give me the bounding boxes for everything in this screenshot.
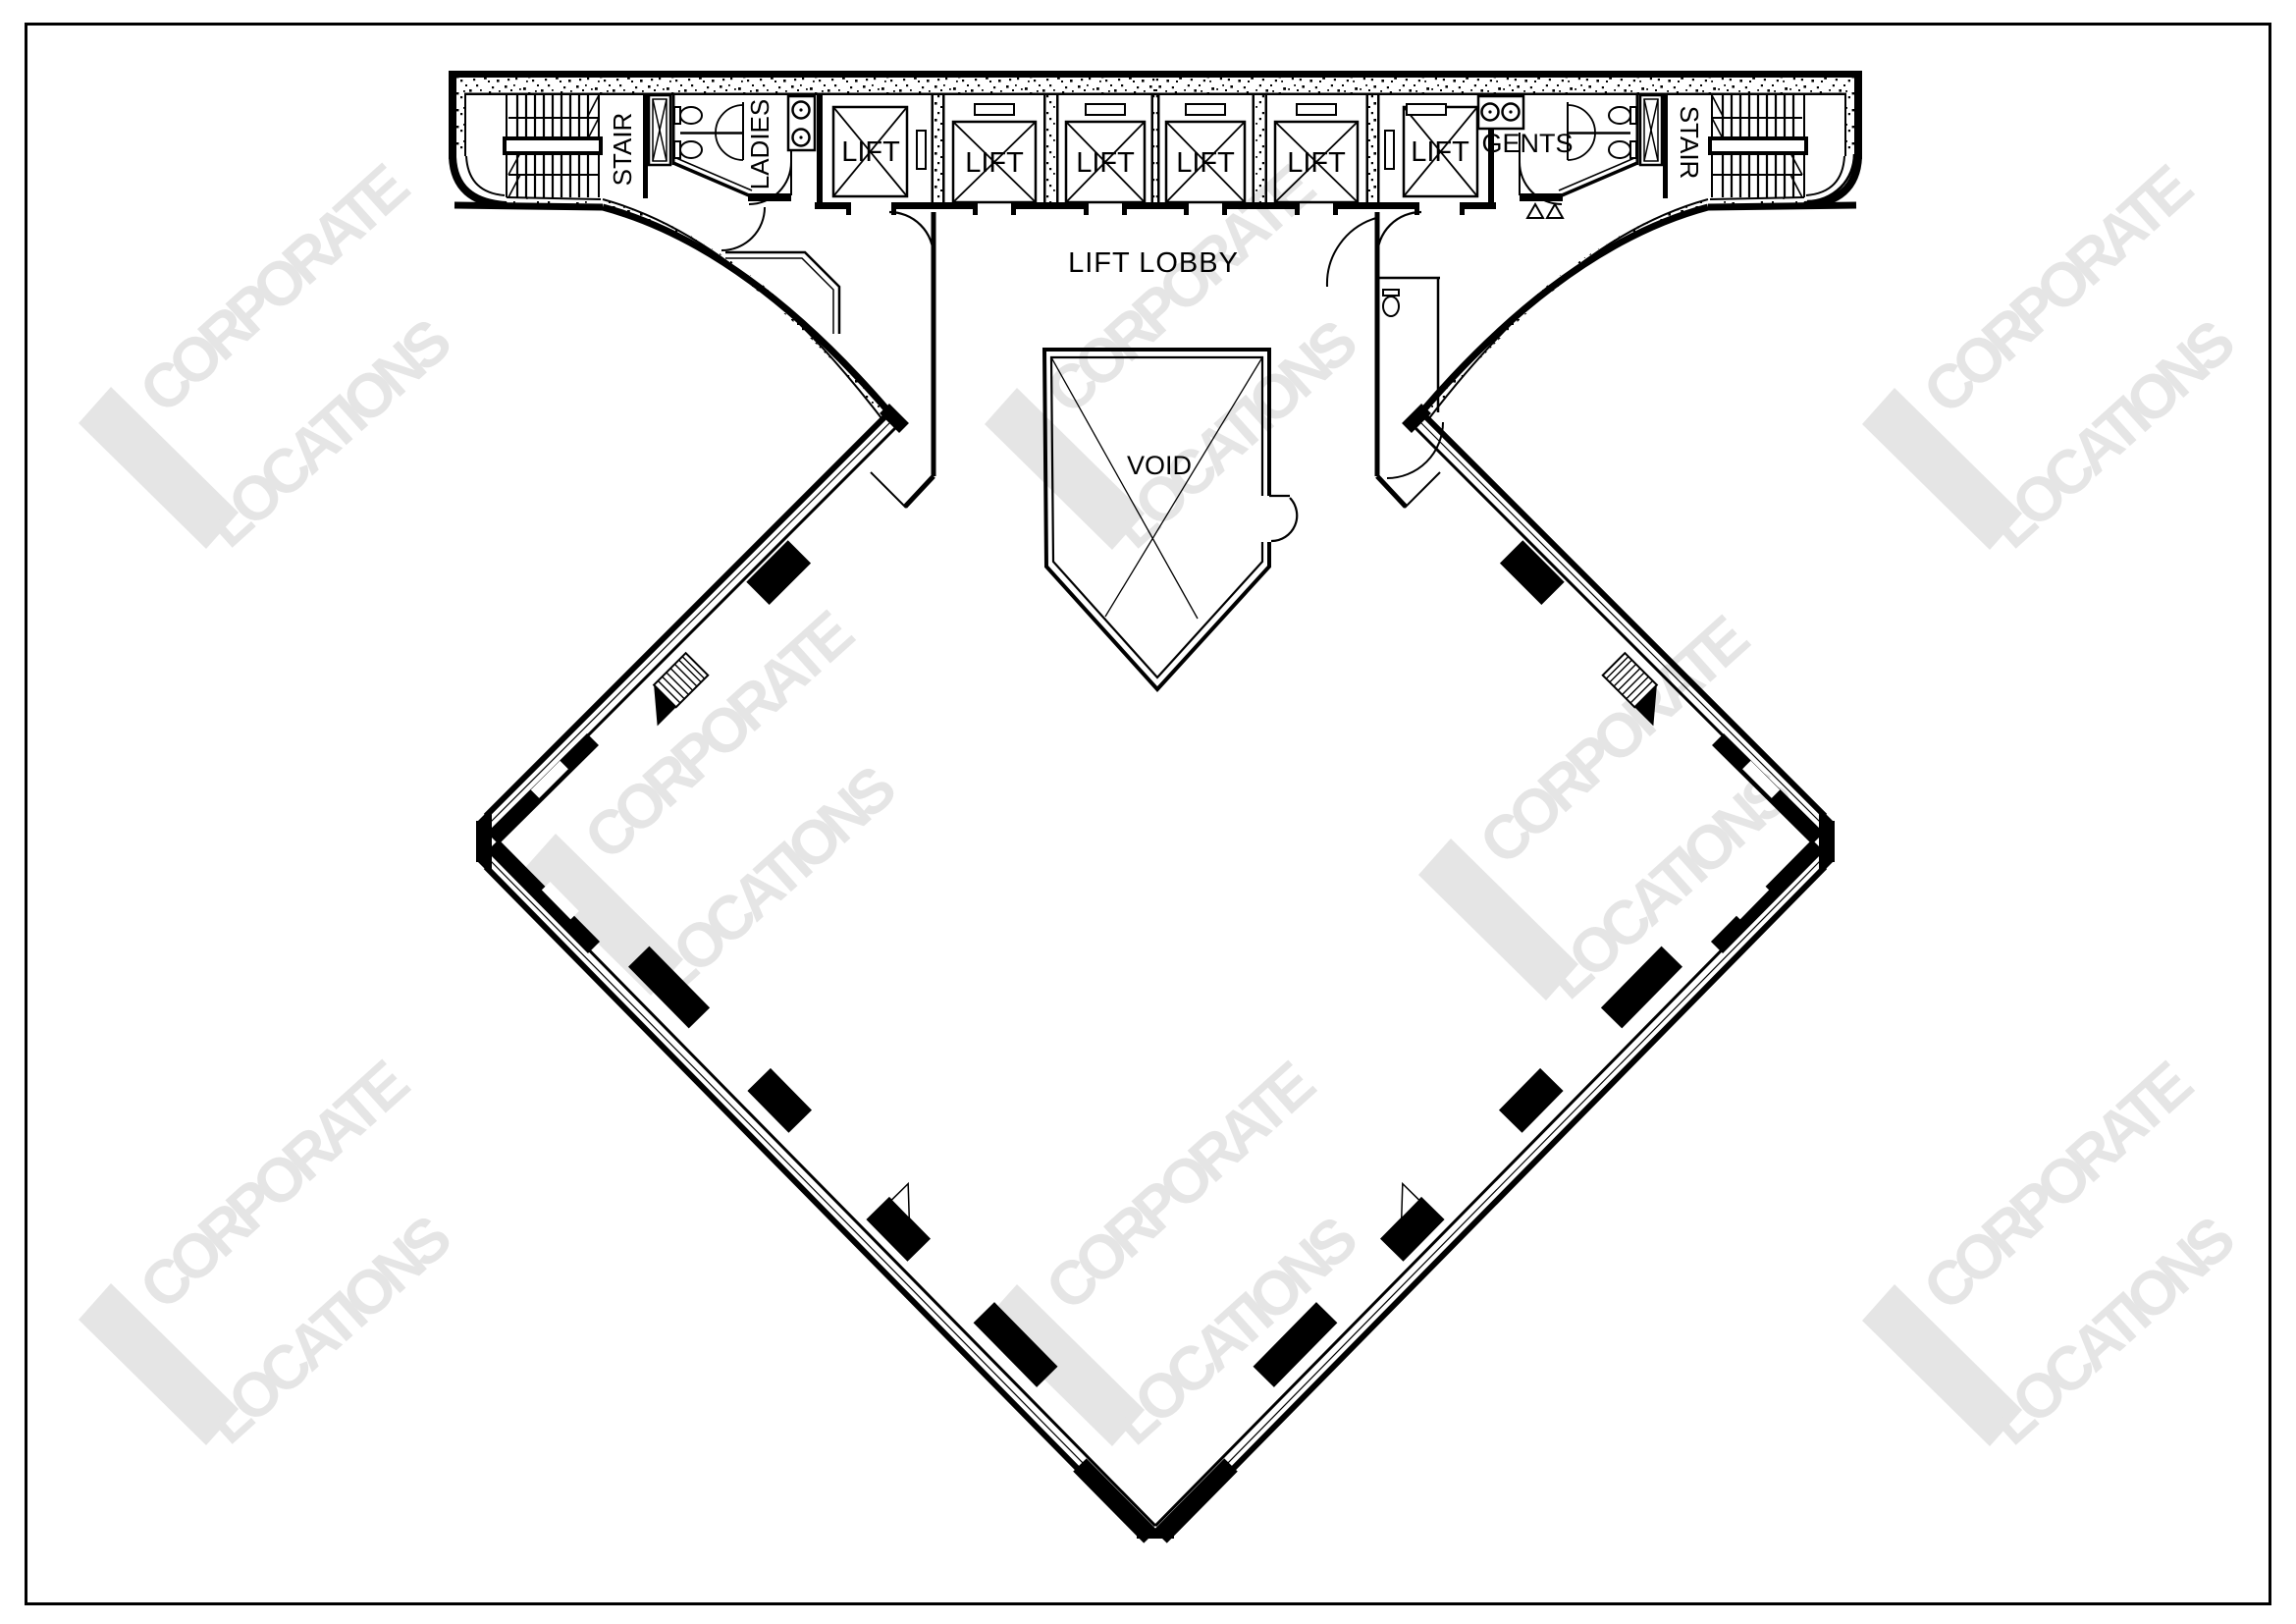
- svg-text:LIFT LOBBY: LIFT LOBBY: [1068, 247, 1239, 279]
- svg-text:GENTS: GENTS: [1481, 129, 1573, 158]
- svg-text:LIFT: LIFT: [1176, 147, 1235, 179]
- svg-text:LIFT: LIFT: [1287, 147, 1346, 179]
- svg-text:STAIR: STAIR: [1675, 106, 1704, 180]
- svg-text:LIFT: LIFT: [841, 136, 900, 168]
- svg-text:LADIES: LADIES: [745, 99, 774, 190]
- svg-text:LIFT: LIFT: [1076, 147, 1135, 179]
- svg-text:LIFT: LIFT: [965, 147, 1024, 179]
- svg-text:VOID: VOID: [1127, 451, 1192, 480]
- svg-text:STAIR: STAIR: [608, 113, 637, 187]
- svg-text:LIFT: LIFT: [1411, 136, 1469, 168]
